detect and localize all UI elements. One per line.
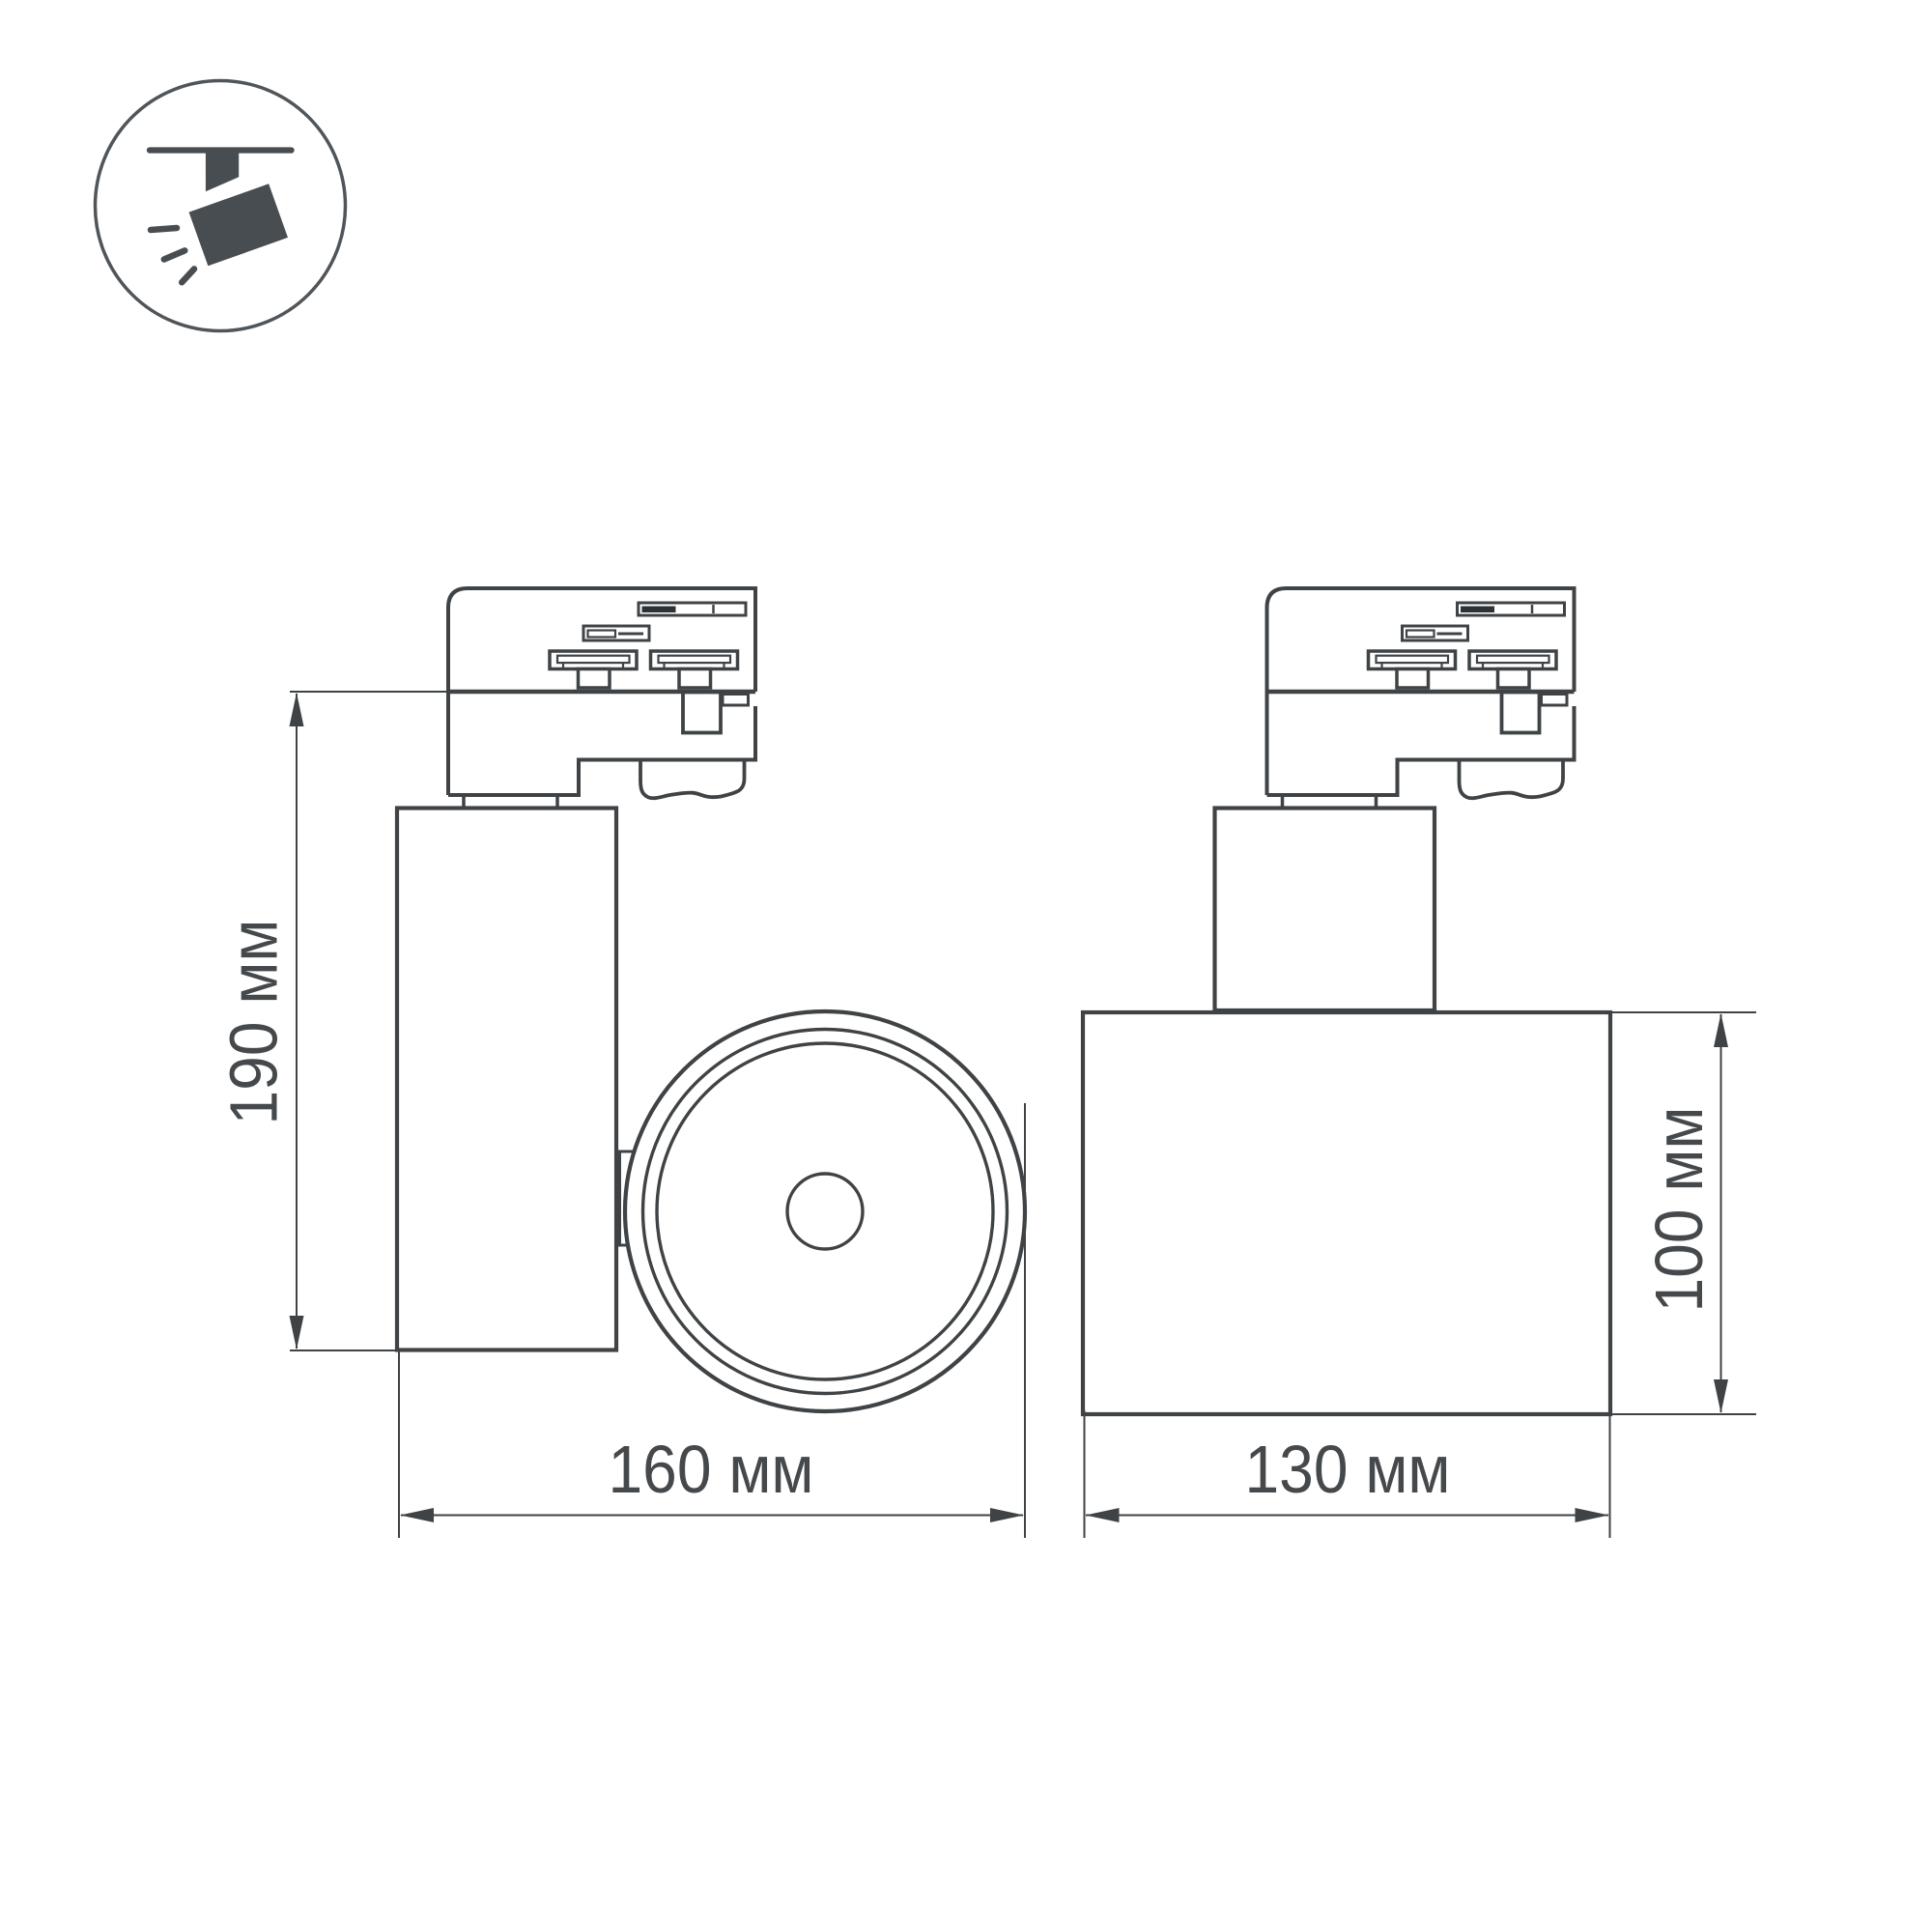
svg-text:130 мм: 130 мм (1245, 1432, 1451, 1507)
svg-text:160 мм: 160 мм (609, 1432, 814, 1507)
svg-text:190 мм: 190 мм (216, 920, 292, 1125)
svg-text:100 мм: 100 мм (1641, 1107, 1717, 1313)
